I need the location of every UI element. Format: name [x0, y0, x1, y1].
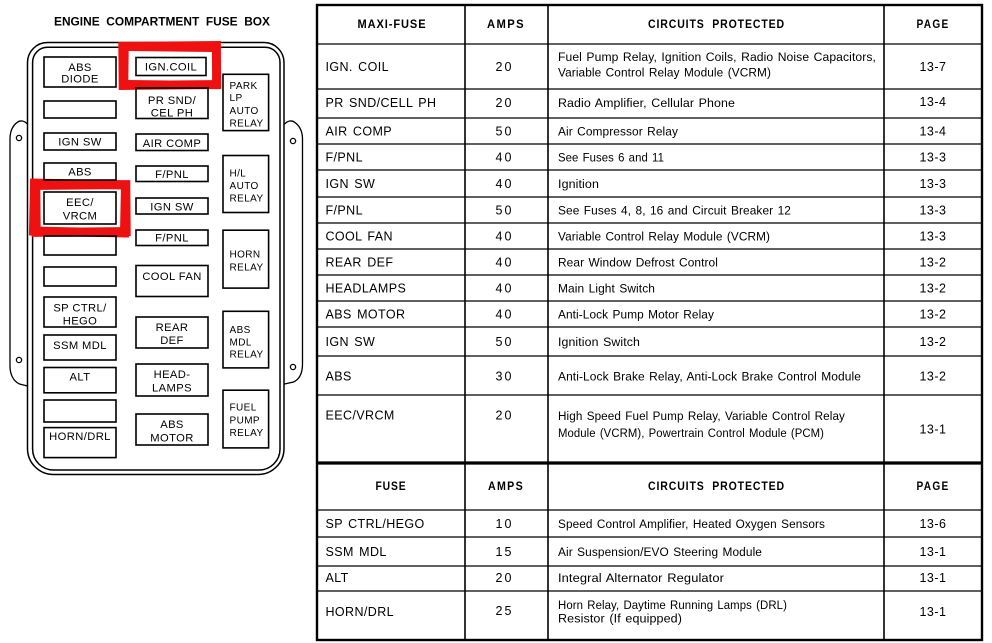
svg-text:40: 40 [496, 177, 514, 191]
svg-text:LAMPS: LAMPS [152, 383, 192, 395]
svg-text:HEADLAMPS: HEADLAMPS [326, 282, 407, 296]
svg-text:CIRCUITS PROTECTED: CIRCUITS PROTECTED [648, 17, 785, 31]
svg-text:F/PNL: F/PNL [326, 151, 363, 165]
svg-text:F/PNL: F/PNL [326, 204, 363, 218]
svg-text:Radio Amplifier, Cellular Phon: Radio Amplifier, Cellular Phone [558, 96, 735, 110]
svg-text:13-2: 13-2 [919, 335, 946, 349]
svg-text:ALT: ALT [326, 571, 349, 585]
svg-text:ABS: ABS [326, 370, 352, 384]
svg-text:13-2: 13-2 [919, 282, 946, 296]
svg-text:COOL FAN: COOL FAN [142, 271, 201, 283]
svg-text:AUTO: AUTO [230, 181, 259, 192]
svg-text:RELAY: RELAY [230, 428, 264, 439]
svg-text:FUEL: FUEL [230, 402, 257, 413]
svg-text:Variable Control Relay Module: Variable Control Relay Module (VCRM) [558, 230, 770, 244]
svg-text:50: 50 [496, 125, 514, 139]
svg-text:F/PNL: F/PNL [155, 233, 189, 245]
svg-text:AIR COMP: AIR COMP [143, 138, 202, 150]
svg-text:AMPS: AMPS [488, 479, 524, 493]
svg-text:LP: LP [230, 93, 243, 104]
svg-text:13-7: 13-7 [919, 60, 946, 74]
svg-text:AIR COMP: AIR COMP [326, 125, 393, 139]
svg-text:CIRCUITS PROTECTED: CIRCUITS PROTECTED [648, 479, 785, 493]
svg-text:ABS: ABS [230, 325, 251, 336]
svg-text:Ignition: Ignition [558, 177, 599, 191]
svg-text:SSM MDL: SSM MDL [53, 340, 107, 352]
svg-text:IGN SW: IGN SW [58, 137, 101, 149]
svg-text:50: 50 [496, 204, 514, 218]
svg-text:13-6: 13-6 [919, 517, 946, 531]
svg-text:See Fuses 4, 8, 16 and Circuit: See Fuses 4, 8, 16 and Circuit Breaker 1… [558, 204, 791, 218]
svg-text:Module (VCRM), Powertrain Cont: Module (VCRM), Powertrain Control Module… [558, 426, 824, 440]
svg-text:40: 40 [496, 282, 514, 296]
svg-text:ABS: ABS [160, 419, 184, 431]
svg-text:ENGINE COMPARTMENT FUSE BOX: ENGINE COMPARTMENT FUSE BOX [54, 15, 270, 29]
svg-text:VRCM: VRCM [63, 211, 98, 223]
svg-text:EEC/VRCM: EEC/VRCM [326, 409, 395, 423]
svg-text:FUSE: FUSE [376, 479, 407, 493]
svg-text:MDL: MDL [230, 338, 252, 349]
svg-text:ABS MOTOR: ABS MOTOR [326, 308, 406, 322]
svg-text:CEL PH: CEL PH [151, 108, 193, 120]
svg-text:RELAY: RELAY [230, 193, 264, 204]
svg-text:13-4: 13-4 [919, 95, 946, 109]
svg-text:IGN. COIL: IGN. COIL [326, 60, 389, 74]
svg-text:13-1: 13-1 [919, 605, 946, 619]
svg-text:40: 40 [496, 230, 514, 244]
svg-text:ABS: ABS [68, 62, 92, 74]
svg-text:Main Light Switch: Main Light Switch [558, 282, 655, 296]
svg-text:DIODE: DIODE [61, 74, 98, 86]
svg-text:30: 30 [496, 370, 514, 384]
svg-text:See Fuses 6 and 11: See Fuses 6 and 11 [558, 151, 664, 165]
svg-text:AUTO: AUTO [230, 106, 259, 117]
svg-text:Anti-Lock Brake Relay, Anti-Lo: Anti-Lock Brake Relay, Anti-Lock Brake C… [558, 370, 861, 384]
svg-text:13-3: 13-3 [919, 177, 946, 191]
svg-text:Fuel Pump Relay, Ignition Coil: Fuel Pump Relay, Ignition Coils, Radio N… [558, 50, 876, 64]
svg-text:High Speed Fuel Pump Relay, Va: High Speed Fuel Pump Relay, Variable Con… [558, 409, 846, 423]
svg-text:AMPS: AMPS [487, 17, 525, 31]
svg-text:20: 20 [496, 571, 514, 585]
svg-text:SP CTRL/HEGO: SP CTRL/HEGO [326, 517, 425, 531]
svg-text:MOTOR: MOTOR [150, 433, 193, 445]
svg-text:RELAY: RELAY [230, 350, 264, 361]
svg-text:PR SND/: PR SND/ [148, 95, 197, 107]
svg-text:PAGE: PAGE [917, 17, 950, 31]
svg-text:Anti-Lock Pump Motor Relay: Anti-Lock Pump Motor Relay [558, 308, 715, 322]
svg-text:EEC/: EEC/ [66, 197, 94, 209]
svg-text:20: 20 [496, 60, 514, 74]
svg-text:H/L: H/L [230, 168, 247, 179]
svg-text:50: 50 [496, 335, 514, 349]
svg-text:13-3: 13-3 [919, 230, 946, 244]
svg-text:DEF: DEF [160, 335, 184, 347]
svg-text:Variable Control Relay Module: Variable Control Relay Module (VCRM) [558, 66, 771, 80]
svg-text:Rear Window Defrost Control: Rear Window Defrost Control [558, 256, 718, 270]
svg-text:HORN/DRL: HORN/DRL [326, 605, 394, 619]
svg-text:13-3: 13-3 [919, 151, 946, 165]
svg-text:10: 10 [496, 517, 514, 531]
svg-text:13-1: 13-1 [919, 571, 946, 585]
svg-text:20: 20 [496, 409, 514, 423]
svg-text:13-4: 13-4 [919, 125, 946, 139]
svg-text:15: 15 [496, 545, 514, 559]
svg-text:Resistor (If equipped): Resistor (If equipped) [558, 612, 682, 626]
svg-text:REAR: REAR [156, 322, 189, 334]
svg-text:13-2: 13-2 [919, 256, 946, 270]
svg-text:IGN SW: IGN SW [326, 335, 376, 349]
svg-text:RELAY: RELAY [230, 119, 264, 130]
svg-text:Speed Control Amplifier, Heate: Speed Control Amplifier, Heated Oxygen S… [558, 517, 825, 531]
svg-text:ALT: ALT [70, 372, 91, 384]
svg-text:13-1: 13-1 [919, 545, 946, 559]
svg-text:SP CTRL/: SP CTRL/ [53, 303, 107, 315]
svg-text:HEAD-: HEAD- [154, 369, 191, 381]
svg-text:Horn Relay, Daytime Running La: Horn Relay, Daytime Running Lamps (DRL) [558, 598, 787, 612]
svg-text:RELAY: RELAY [230, 262, 264, 273]
svg-text:IGN.COIL: IGN.COIL [145, 62, 197, 74]
svg-text:25: 25 [496, 604, 514, 618]
svg-text:SSM MDL: SSM MDL [326, 545, 387, 559]
svg-text:MAXI-FUSE: MAXI-FUSE [358, 17, 427, 31]
svg-text:PUMP: PUMP [230, 415, 261, 426]
svg-text:IGN SW: IGN SW [326, 177, 376, 191]
svg-text:REAR DEF: REAR DEF [326, 256, 394, 270]
svg-text:HORN/DRL: HORN/DRL [49, 431, 111, 443]
svg-text:PAGE: PAGE [917, 479, 950, 493]
svg-text:13-2: 13-2 [919, 308, 946, 322]
svg-text:40: 40 [496, 308, 514, 322]
svg-text:PR SND/CELL PH: PR SND/CELL PH [326, 96, 437, 110]
svg-text:Integral Alternator Regulator: Integral Alternator Regulator [558, 571, 724, 585]
svg-text:Air Suspension/EVO Steering Mo: Air Suspension/EVO Steering Module [558, 545, 762, 559]
svg-text:13-3: 13-3 [919, 204, 946, 218]
svg-text:ABS: ABS [68, 167, 92, 179]
svg-text:Air Compressor Relay: Air Compressor Relay [558, 125, 679, 139]
svg-text:HEGO: HEGO [63, 316, 98, 328]
svg-text:40: 40 [496, 256, 514, 270]
svg-text:13-2: 13-2 [919, 370, 946, 384]
svg-text:COOL FAN: COOL FAN [326, 230, 393, 244]
svg-text:20: 20 [496, 96, 514, 110]
svg-text:F/PNL: F/PNL [155, 169, 189, 181]
svg-text:Ignition Switch: Ignition Switch [558, 335, 640, 349]
svg-text:HORN: HORN [230, 250, 261, 261]
svg-text:PARK: PARK [230, 81, 258, 92]
svg-text:IGN SW: IGN SW [150, 202, 193, 214]
svg-text:40: 40 [496, 151, 514, 165]
svg-text:13-1: 13-1 [919, 423, 946, 437]
